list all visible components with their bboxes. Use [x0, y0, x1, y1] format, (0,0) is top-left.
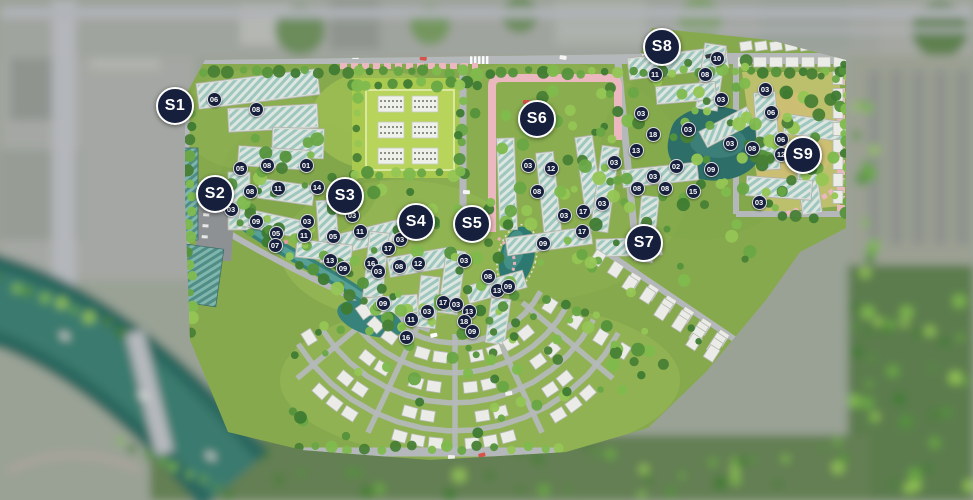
building-marker-08[interactable]: 08: [243, 184, 258, 199]
building-marker-08[interactable]: 08: [745, 141, 760, 156]
building-marker-11[interactable]: 11: [271, 181, 286, 196]
building-marker-17[interactable]: 17: [381, 241, 396, 256]
building-marker-03[interactable]: 03: [714, 92, 729, 107]
building-marker-06[interactable]: 06: [764, 105, 779, 120]
markers-layer: S1S2S3S4S5S6S7S8S90608050801111408030905…: [0, 0, 973, 500]
building-marker-10[interactable]: 10: [710, 51, 725, 66]
building-marker-11[interactable]: 11: [648, 67, 663, 82]
building-marker-14[interactable]: 14: [310, 180, 325, 195]
building-marker-03[interactable]: 03: [557, 208, 572, 223]
building-marker-08[interactable]: 08: [481, 269, 496, 284]
building-marker-03[interactable]: 03: [634, 106, 649, 121]
building-marker-13[interactable]: 13: [323, 253, 338, 268]
zone-marker-s5[interactable]: S5: [453, 205, 491, 243]
building-marker-08[interactable]: 08: [249, 102, 264, 117]
building-marker-03[interactable]: 03: [723, 136, 738, 151]
building-marker-07[interactable]: 07: [268, 238, 283, 253]
building-marker-03[interactable]: 03: [521, 158, 536, 173]
building-marker-11[interactable]: 11: [297, 228, 312, 243]
building-marker-08[interactable]: 08: [630, 181, 645, 196]
building-marker-02[interactable]: 02: [669, 159, 684, 174]
building-marker-17[interactable]: 17: [575, 224, 590, 239]
building-marker-03[interactable]: 03: [371, 264, 386, 279]
building-marker-17[interactable]: 17: [576, 204, 591, 219]
masterplan-map: S1S2S3S4S5S6S7S8S90608050801111408030905…: [0, 0, 973, 500]
zone-marker-s9[interactable]: S9: [784, 136, 822, 174]
zone-marker-s2[interactable]: S2: [196, 175, 234, 213]
building-marker-08[interactable]: 08: [658, 181, 673, 196]
building-marker-06[interactable]: 06: [207, 92, 222, 107]
building-marker-08[interactable]: 08: [530, 184, 545, 199]
building-marker-03[interactable]: 03: [457, 253, 472, 268]
building-marker-11[interactable]: 11: [404, 312, 419, 327]
zone-marker-s3[interactable]: S3: [326, 177, 364, 215]
building-marker-09[interactable]: 09: [536, 236, 551, 251]
building-marker-01[interactable]: 01: [299, 158, 314, 173]
building-marker-08[interactable]: 08: [698, 67, 713, 82]
building-marker-12[interactable]: 12: [544, 161, 559, 176]
building-marker-03[interactable]: 03: [300, 214, 315, 229]
building-marker-03[interactable]: 03: [607, 155, 622, 170]
building-marker-03[interactable]: 03: [595, 196, 610, 211]
building-marker-16[interactable]: 16: [399, 330, 414, 345]
zone-marker-s6[interactable]: S6: [518, 100, 556, 138]
building-marker-03[interactable]: 03: [681, 122, 696, 137]
building-marker-08[interactable]: 08: [392, 259, 407, 274]
building-marker-03[interactable]: 03: [752, 195, 767, 210]
zone-marker-s4[interactable]: S4: [397, 203, 435, 241]
building-marker-03[interactable]: 03: [420, 304, 435, 319]
building-marker-09[interactable]: 09: [249, 214, 264, 229]
building-marker-09[interactable]: 09: [376, 296, 391, 311]
building-marker-11[interactable]: 11: [353, 224, 368, 239]
zone-marker-s7[interactable]: S7: [625, 224, 663, 262]
building-marker-18[interactable]: 18: [646, 127, 661, 142]
building-marker-09[interactable]: 09: [336, 261, 351, 276]
building-marker-09[interactable]: 09: [704, 162, 719, 177]
building-marker-08[interactable]: 08: [260, 158, 275, 173]
building-marker-05[interactable]: 05: [326, 229, 341, 244]
building-marker-09[interactable]: 09: [501, 279, 516, 294]
building-marker-03[interactable]: 03: [758, 82, 773, 97]
zone-marker-s8[interactable]: S8: [643, 28, 681, 66]
zone-marker-s1[interactable]: S1: [156, 87, 194, 125]
building-marker-03[interactable]: 03: [646, 169, 661, 184]
building-marker-13[interactable]: 13: [629, 143, 644, 158]
building-marker-12[interactable]: 12: [411, 256, 426, 271]
building-marker-05[interactable]: 05: [233, 161, 248, 176]
building-marker-15[interactable]: 15: [686, 184, 701, 199]
building-marker-09[interactable]: 09: [465, 324, 480, 339]
